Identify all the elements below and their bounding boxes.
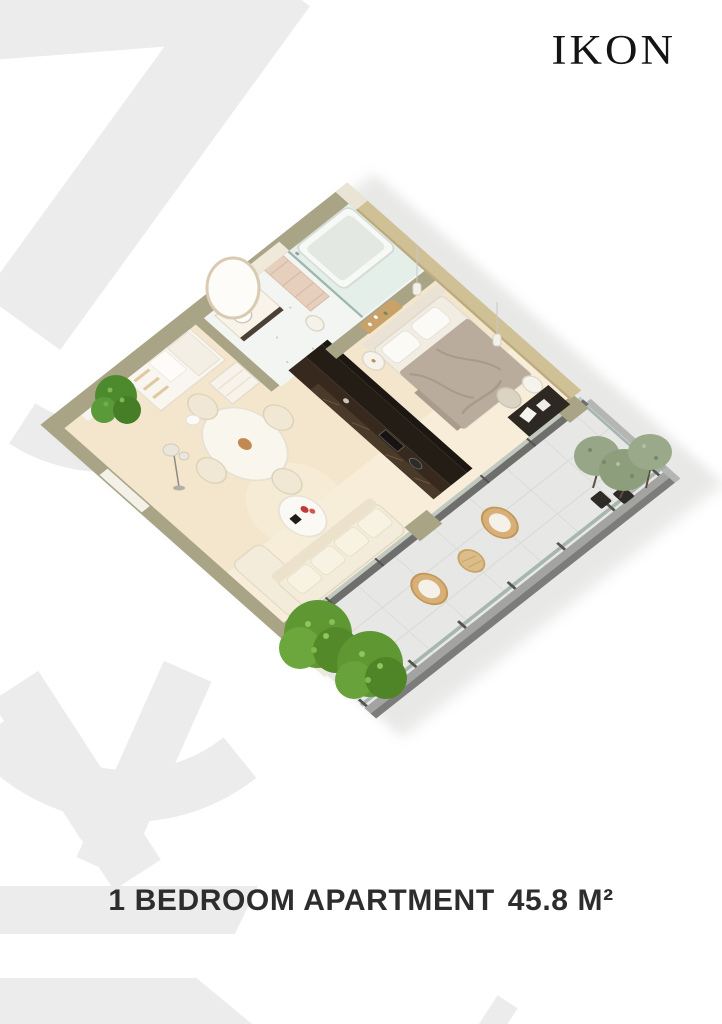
- page: IKON: [0, 0, 722, 1024]
- lamp-shade: [163, 444, 179, 456]
- pendant-light: [493, 334, 501, 346]
- caption-area: 45.8 M²: [508, 884, 614, 917]
- caption-label: 1 BEDROOM APARTMENT: [108, 884, 494, 917]
- floorplan-render: [0, 0, 722, 1024]
- pendant-light: [413, 283, 421, 295]
- caption: 1 BEDROOM APARTMENT45.8 M²: [0, 884, 722, 918]
- round-mirror: [207, 258, 259, 318]
- floor-vase: [186, 415, 200, 425]
- lamp-shade: [179, 452, 189, 460]
- lamp-base: [173, 486, 185, 491]
